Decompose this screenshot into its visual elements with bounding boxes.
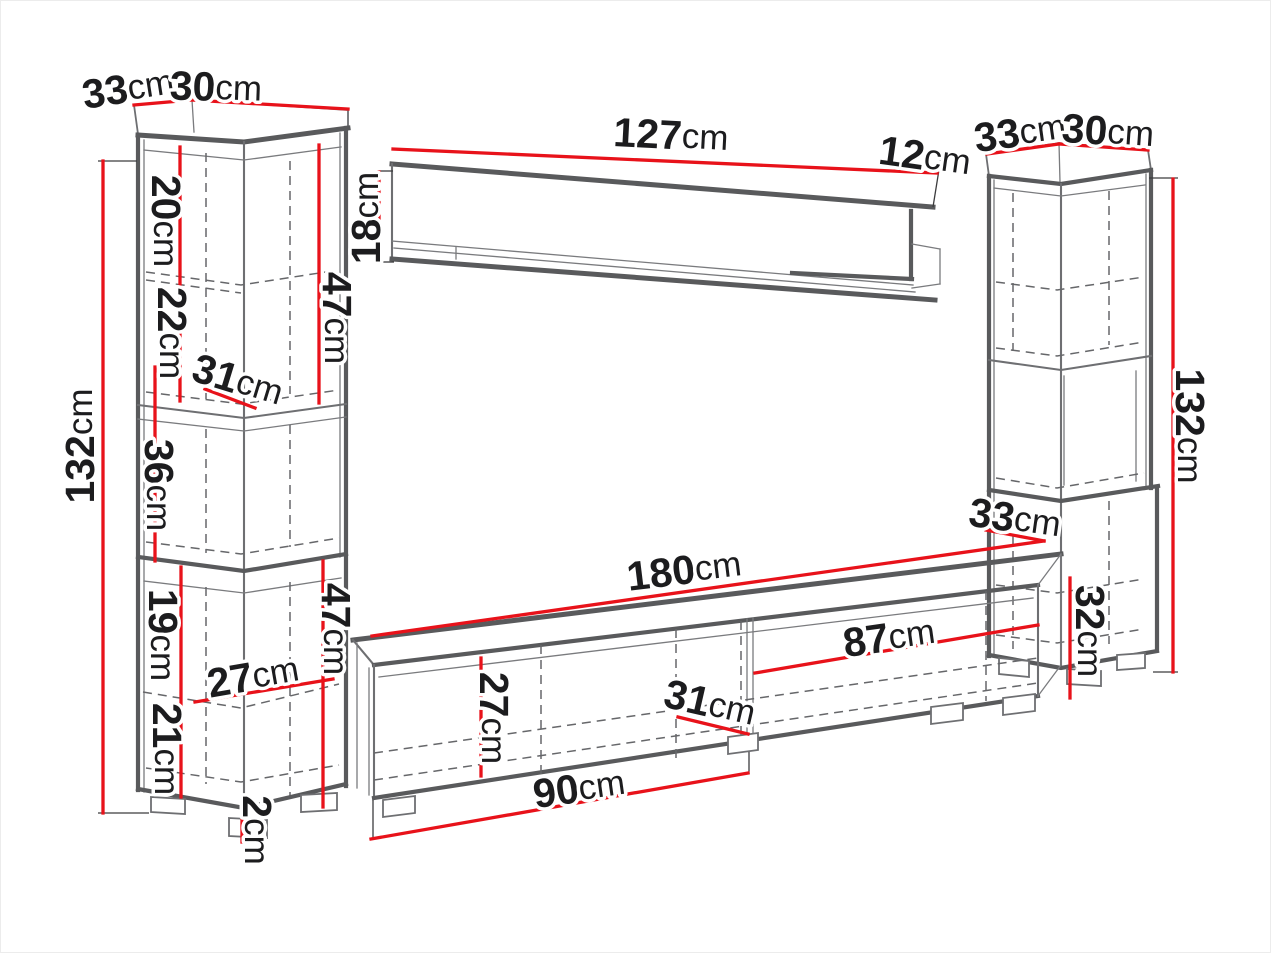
dim-left-section-5: 21cm (144, 703, 190, 795)
dim-left-cabinet-top-width: 30cm (169, 62, 263, 111)
diagram-canvas: 33cm 30cm 132cm 20cm 22cm 31cm 47cm 36cm… (1, 1, 1271, 953)
dim-tv-right-door-width: 87cm (840, 608, 938, 666)
wall-shelf (392, 164, 940, 300)
dim-shelf-end-depth: 12cm (876, 127, 974, 185)
dim-left-shelf-depth: 31cm (187, 345, 289, 416)
dim-left-lower-box-height: 47cm (313, 583, 359, 675)
furniture-dimension-diagram: 33cm 30cm 132cm 20cm 22cm 31cm 47cm 36cm… (0, 0, 1271, 953)
dim-left-upper-box-height: 47cm (314, 272, 360, 364)
dim-tv-left-door-width: 90cm (530, 759, 628, 817)
dim-tv-inner-height: 27cm (471, 672, 517, 764)
dim-left-section-3: 36cm (136, 439, 182, 531)
dim-left-section-4: 19cm (140, 589, 186, 681)
dim-shelf-height: 18cm (343, 172, 389, 264)
dim-shelf-length: 127cm (612, 109, 729, 161)
dim-right-cabinet-height: 132cm (1167, 368, 1213, 483)
dim-left-cabinet-height: 132cm (57, 388, 103, 503)
dim-tv-length: 180cm (624, 540, 744, 600)
dim-left-section-2: 22cm (149, 287, 195, 379)
dim-left-feet-height: 2cm (234, 795, 280, 864)
dim-left-shelf-width: 27cm (204, 645, 303, 706)
dim-left-section-1: 20cm (143, 175, 189, 267)
dim-right-lower-box-height: 32cm (1067, 585, 1113, 677)
dim-right-cabinet-top-width: 30cm (1060, 105, 1155, 157)
